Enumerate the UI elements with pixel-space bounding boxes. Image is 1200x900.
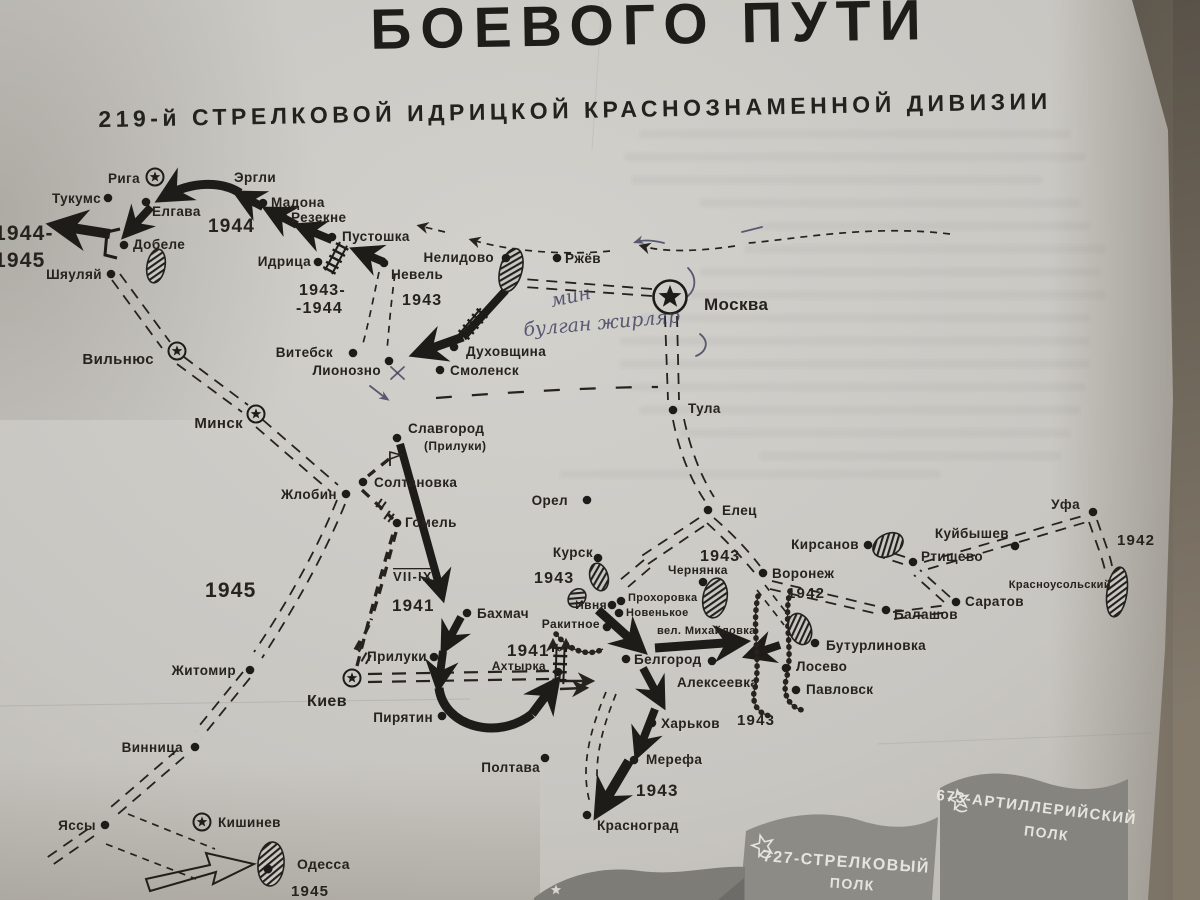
- city-dot: [699, 578, 708, 587]
- city-label: Красноград: [597, 818, 679, 833]
- city-label: Прохоровка: [628, 592, 698, 604]
- city-dot: [583, 811, 592, 820]
- date-label: 1943: [402, 292, 442, 309]
- date-label: 1941: [392, 596, 435, 615]
- flag-unit: ПОЛК: [829, 874, 875, 893]
- date-label: 1942: [1117, 532, 1155, 549]
- city-dot: [142, 198, 151, 207]
- city-label: Солтановка: [374, 475, 457, 490]
- city-label: Витебск: [276, 345, 333, 360]
- city-label: Нелидово: [423, 250, 494, 265]
- city-label: Жлобин: [280, 487, 337, 502]
- city-label: Пирятин: [373, 710, 433, 725]
- city-label: (Прилуки): [424, 439, 486, 453]
- date-label: 1944-: [0, 222, 54, 245]
- city-label: Славгород: [408, 421, 484, 436]
- city-dot: [608, 601, 617, 610]
- city-label: Шяуляй: [46, 267, 102, 282]
- city-label: Курск: [553, 545, 593, 560]
- city-dot: [554, 668, 563, 677]
- city-dot: [436, 366, 445, 375]
- city-dot: [380, 259, 389, 268]
- date-label: VII-IX: [393, 569, 433, 584]
- city-dot: [385, 357, 394, 366]
- photographed-map-page: РигаТукумсЭрглиМадонаРезекнеПустошкаИдри…: [0, 0, 1200, 900]
- city-label: Житомир: [171, 663, 236, 678]
- city-label: Мадона: [271, 195, 325, 210]
- city-dot: [617, 597, 626, 606]
- city-label: Тукумс: [52, 191, 101, 206]
- city-label: Елец: [722, 503, 757, 518]
- city-label: Одесса: [297, 856, 350, 872]
- city-dot: [280, 214, 289, 223]
- city-label: Елгава: [152, 204, 201, 219]
- city-label: Орел: [532, 493, 568, 508]
- city-dot: [359, 478, 368, 487]
- date-label: 1943-: [299, 282, 346, 299]
- date-label: 1945: [291, 883, 329, 900]
- city-label: Москва: [704, 295, 769, 314]
- city-dot: [314, 258, 323, 267]
- city-label: Тула: [688, 401, 721, 416]
- city-label: Воронеж: [772, 566, 834, 581]
- city-dot: [811, 639, 820, 648]
- city-label: Кишинев: [218, 815, 281, 830]
- date-label: 1943: [636, 781, 679, 800]
- city-dot: [430, 653, 439, 662]
- city-dot: [708, 657, 717, 666]
- city-dot: [669, 406, 678, 415]
- date-label: 1943: [534, 570, 574, 587]
- city-label: Харьков: [661, 716, 720, 731]
- city-dot: [1011, 542, 1020, 551]
- city-label: Саратов: [965, 594, 1024, 609]
- date-label: 1944: [208, 216, 255, 237]
- city-label: Минск: [194, 415, 243, 432]
- city-dot: [450, 343, 459, 352]
- date-label: 1945: [0, 249, 46, 272]
- city-label: Ивня: [575, 598, 607, 612]
- city-dot: [463, 609, 472, 618]
- date-label: 1942: [787, 585, 825, 602]
- city-dot: [107, 270, 116, 279]
- city-label: Кирсанов: [791, 537, 859, 552]
- city-label: Ржёв: [565, 251, 601, 266]
- battle-map-canvas: РигаТукумсЭрглиМадонаРезекнеПустошкаИдри…: [0, 0, 1200, 900]
- city-label: Балашов: [894, 607, 958, 622]
- city-dot: [246, 666, 255, 675]
- city-dot: [864, 541, 873, 550]
- city-dot: [1089, 508, 1098, 517]
- city-dot: [259, 199, 268, 208]
- odessa-dot: [264, 865, 273, 874]
- city-dot: [704, 506, 713, 515]
- city-label: Белгород: [634, 652, 702, 667]
- city-dot: [553, 254, 562, 263]
- city-dot: [120, 241, 129, 250]
- city-label: Бахмач: [477, 606, 529, 621]
- city-dot: [622, 655, 631, 664]
- city-dot: [952, 598, 961, 607]
- city-label: Ртищево: [921, 549, 983, 564]
- city-label: Духовщина: [466, 344, 546, 359]
- city-dot: [909, 558, 918, 567]
- city-dot: [222, 183, 231, 192]
- city-label: Павловск: [806, 682, 873, 697]
- city-label: Эргли: [234, 170, 276, 185]
- city-dot: [349, 349, 358, 358]
- city-label: Пустошка: [342, 229, 410, 244]
- city-dot: [594, 554, 603, 563]
- city-label: Киев: [307, 693, 347, 710]
- city-dot: [393, 519, 402, 528]
- date-label: 1945: [205, 579, 257, 602]
- city-dot: [104, 194, 113, 203]
- city-dot: [191, 743, 200, 752]
- city-label: Добеле: [133, 237, 185, 252]
- city-dot: [342, 490, 351, 499]
- city-label: Идрица: [258, 254, 311, 269]
- date-label: 1943: [737, 712, 775, 729]
- city-label: вел. Михайловка: [657, 625, 756, 637]
- city-label: Бутурлиновка: [826, 638, 926, 653]
- city-label: Алексеевка: [677, 675, 758, 690]
- city-dot: [438, 712, 447, 721]
- date-label: -1944: [296, 300, 343, 317]
- city-label: Лионозно: [312, 363, 381, 378]
- city-label: Резекне: [291, 210, 347, 225]
- city-label: Яссы: [58, 818, 96, 833]
- city-dot: [882, 606, 891, 615]
- city-dot: [630, 756, 639, 765]
- city-label: Красноусольский: [1009, 579, 1111, 591]
- city-dot: [759, 569, 768, 578]
- city-label: Гомель: [405, 515, 457, 530]
- city-label: Прилуки: [367, 649, 427, 664]
- city-dot: [583, 496, 592, 505]
- city-label: Рига: [108, 171, 140, 186]
- city-label: Уфа: [1051, 497, 1080, 512]
- date-label: 1941: [507, 641, 550, 660]
- city-label: Куйбышев: [935, 526, 1009, 541]
- city-dot: [648, 719, 657, 728]
- date-label: 1943: [700, 548, 740, 565]
- city-dot: [541, 754, 550, 763]
- city-label: Ракитное: [542, 617, 600, 631]
- city-label: Новенькое: [626, 607, 689, 619]
- city-label: Винница: [122, 740, 184, 755]
- city-dot: [101, 821, 110, 830]
- city-label: Чернянка: [668, 563, 728, 577]
- city-dot: [502, 254, 511, 263]
- city-dot: [792, 686, 801, 695]
- city-label: Вильнюс: [82, 351, 154, 368]
- city-label: Мерефа: [646, 752, 702, 767]
- city-dot: [782, 664, 791, 673]
- city-label: Полтава: [481, 760, 540, 775]
- city-dot: [615, 609, 624, 618]
- city-dot: [328, 233, 337, 242]
- city-label: Невель: [391, 267, 443, 282]
- city-dot: [393, 434, 402, 443]
- city-dot: [603, 623, 612, 632]
- city-label: Ахтырка: [492, 659, 546, 673]
- city-label: Лосево: [796, 659, 847, 674]
- city-label: Смоленск: [450, 363, 519, 378]
